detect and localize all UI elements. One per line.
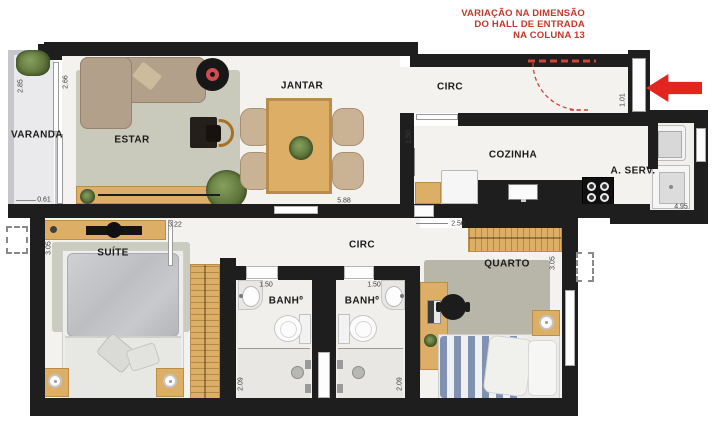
kitchen-cabinet bbox=[415, 182, 441, 204]
dim-banheiro1-width: 1.50 bbox=[259, 282, 273, 289]
dim-quarto-height: 3.05 bbox=[550, 256, 557, 270]
dim-banheiro2-depth: 2.09 bbox=[397, 377, 404, 391]
wall bbox=[236, 266, 246, 280]
kitchen-sink bbox=[508, 184, 538, 200]
balcony-sliding-door bbox=[57, 134, 63, 204]
stove-burner-icon bbox=[600, 182, 609, 191]
dim-varanda-width: 0.61 bbox=[37, 197, 51, 204]
wall bbox=[220, 258, 236, 402]
lamp-icon bbox=[48, 374, 62, 388]
sofa-chaise bbox=[80, 57, 132, 129]
dim-quarto-entry: 2.50 bbox=[451, 221, 465, 228]
varanda-plant-icon bbox=[16, 50, 50, 76]
room-label-suite: SUÍTE bbox=[97, 248, 128, 259]
wall bbox=[30, 216, 45, 416]
wall bbox=[44, 42, 418, 56]
wall bbox=[30, 398, 578, 416]
suite-bed-pillow bbox=[67, 253, 179, 337]
lamp-icon bbox=[163, 374, 177, 388]
hall-floor bbox=[400, 67, 632, 113]
wall-opening bbox=[274, 206, 318, 214]
entrance-arrow-icon bbox=[646, 74, 702, 102]
dim-aserv-width: 4.95 bbox=[674, 204, 688, 211]
office-chair bbox=[440, 294, 466, 320]
wall bbox=[278, 266, 312, 280]
entrance-door bbox=[632, 58, 646, 112]
floor-plan: VARANDA ESTAR JANTAR CIRC COZINHA A. SER… bbox=[0, 0, 715, 432]
suite-wardrobe bbox=[190, 264, 220, 400]
toilet-bowl bbox=[274, 315, 302, 342]
tv-speaker-icon bbox=[106, 222, 122, 238]
aserv-window bbox=[696, 128, 706, 162]
stove-burner-icon bbox=[587, 193, 596, 202]
stove-burner-icon bbox=[587, 182, 596, 191]
desk-plant-icon bbox=[424, 334, 437, 347]
dim-line bbox=[16, 200, 36, 201]
wall bbox=[610, 210, 708, 224]
shower-drain-icon bbox=[352, 366, 365, 379]
dresser-knob-icon bbox=[50, 226, 57, 233]
shower-fitting-icon bbox=[305, 384, 311, 393]
stove bbox=[582, 177, 614, 205]
wall bbox=[336, 266, 344, 280]
dim-varanda-height: 2.85 bbox=[18, 79, 25, 93]
varanda-railing bbox=[8, 52, 14, 204]
sideboard-plant-icon bbox=[80, 189, 95, 204]
shower-fitting-icon bbox=[305, 360, 311, 369]
shower-fitting-icon bbox=[337, 360, 343, 369]
stove-burner-icon bbox=[600, 193, 609, 202]
dim-jantar-width: 5.88 bbox=[337, 198, 351, 205]
wall bbox=[405, 266, 420, 402]
banheiro1-door bbox=[246, 266, 278, 279]
dim-banheiro1-depth: 2.09 bbox=[238, 377, 245, 391]
annotation-note: VARIAÇÃO NA DIMENSÃO DO HALL DE ENTRADA … bbox=[385, 8, 585, 41]
kitchen-door-leaf bbox=[416, 114, 458, 120]
room-label-cozinha: COZINHA bbox=[489, 150, 537, 161]
shaft-opening bbox=[318, 352, 330, 398]
annotation-line: NA COLUNA 13 bbox=[385, 30, 585, 41]
sink-faucet bbox=[521, 199, 526, 202]
annotation-line: DO HALL DE ENTRADA bbox=[385, 19, 585, 30]
quarto-window bbox=[565, 290, 575, 366]
room-label-estar: ESTAR bbox=[114, 135, 149, 146]
room-label-circ-hall: CIRC bbox=[437, 82, 463, 93]
fridge bbox=[441, 170, 478, 204]
dim-line bbox=[414, 148, 415, 176]
shower-drain-icon bbox=[291, 366, 304, 379]
dim-line bbox=[416, 223, 448, 224]
wall bbox=[462, 210, 576, 228]
banheiro2-shower-area bbox=[338, 348, 403, 401]
lamp-icon bbox=[539, 315, 554, 330]
room-label-aserv: A. SERV. bbox=[611, 166, 656, 177]
bathroom-sink bbox=[381, 280, 405, 310]
dim-banheiro2-width: 1.50 bbox=[367, 282, 381, 289]
column-13-dashed-box bbox=[576, 252, 594, 282]
shower-fitting-icon bbox=[337, 384, 343, 393]
quarto-duvet bbox=[483, 335, 534, 398]
room-label-banheiro2: BANHº bbox=[345, 296, 380, 307]
dim-hall-entry: 1.01 bbox=[620, 93, 627, 107]
corridor-opening bbox=[414, 205, 434, 217]
dim-suite-width: 3.22 bbox=[168, 222, 182, 229]
wall bbox=[400, 113, 414, 206]
disc-flower bbox=[206, 68, 219, 81]
dim-suite-height: 3.05 bbox=[46, 241, 53, 255]
room-label-circ-quartos: CIRC bbox=[349, 240, 375, 251]
banheiro2-door bbox=[344, 266, 374, 279]
quarto-pillow bbox=[528, 340, 557, 396]
wall bbox=[648, 123, 658, 169]
room-label-banheiro1: BANHº bbox=[269, 296, 304, 307]
column-13-dashed-box bbox=[6, 226, 28, 254]
dining-chair bbox=[332, 152, 364, 190]
room-label-varanda: VARANDA bbox=[11, 130, 63, 141]
balcony-sliding-door bbox=[53, 62, 59, 132]
dim-cozinha-entry: 1.50 bbox=[406, 130, 413, 144]
room-label-jantar: JANTAR bbox=[281, 81, 323, 92]
table-plant-icon bbox=[289, 136, 313, 160]
wall bbox=[410, 54, 634, 67]
dining-chair bbox=[332, 108, 364, 146]
washing-machine bbox=[652, 165, 690, 209]
sideboard-handle bbox=[98, 194, 220, 196]
annotation-line: VARIAÇÃO NA DIMENSÃO bbox=[385, 8, 585, 19]
wall bbox=[374, 266, 405, 280]
dim-estar-height: 2.66 bbox=[63, 75, 70, 89]
chair-seat bbox=[206, 125, 221, 142]
toilet-bowl bbox=[349, 315, 377, 342]
room-label-quarto: QUARTO bbox=[484, 259, 530, 270]
wall bbox=[458, 113, 650, 126]
